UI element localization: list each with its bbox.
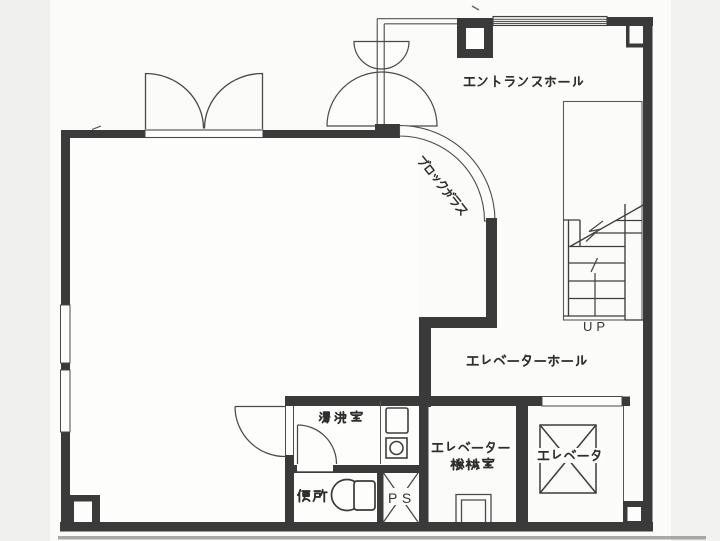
- svg-text:PS: PS: [388, 490, 416, 506]
- svg-text:UP: UP: [583, 319, 609, 334]
